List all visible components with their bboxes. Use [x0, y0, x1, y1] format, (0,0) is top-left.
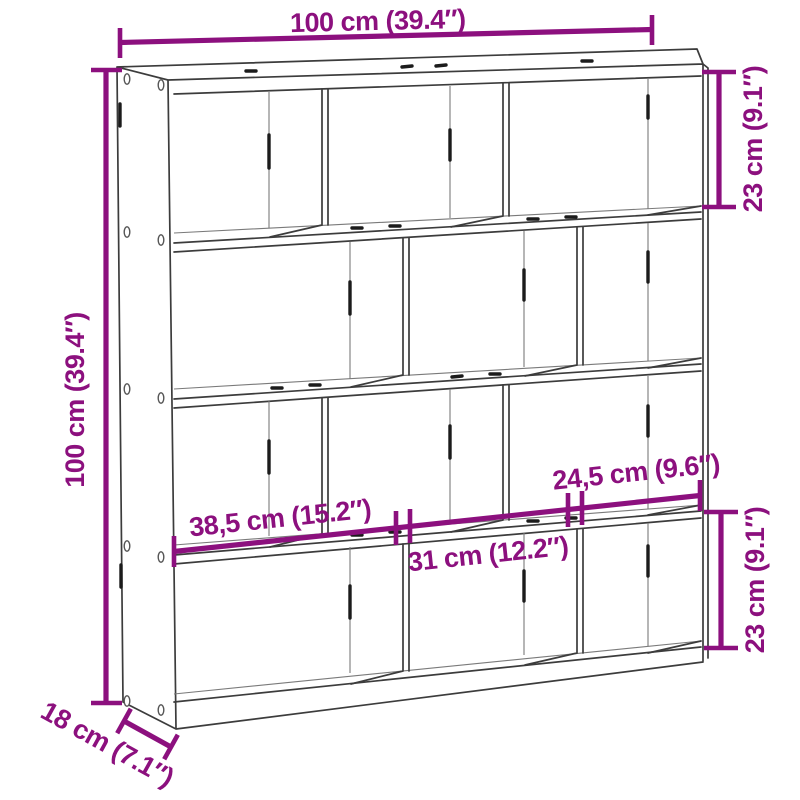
divider-front-edges: [270, 83, 701, 684]
dimension-bottom-right-cube-height: 23 cm (9.1″): [704, 507, 770, 654]
product-dimension-diagram: 100 cm (39.4″) 100 cm (39.4″) 23 cm (9.1…: [0, 0, 800, 800]
shelf-surface-back-edges: [174, 206, 701, 694]
compartment-right-width-label: 24,5 cm (9.6″): [551, 448, 721, 495]
dimension-annotations: 100 cm (39.4″) 100 cm (39.4″) 23 cm (9.1…: [36, 4, 770, 793]
dimension-left-height: 100 cm (39.4″): [60, 70, 122, 703]
bottom-cube-height-label: 23 cm (9.1″): [740, 507, 770, 654]
cube-shelf-drawing: [117, 49, 708, 729]
shelf-surface-screw-marks: [246, 61, 592, 535]
dimension-depth: 18 cm (7.1″): [36, 695, 179, 792]
dimension-compartment-widths: 38,5 cm (15.2″) 31 cm (12.2″) 24,5 cm (9…: [174, 448, 721, 577]
side-panel-mounting-holes: [124, 74, 164, 715]
dimension-top-right-cube-height: 23 cm (9.1″): [702, 66, 768, 213]
top-cube-height-label: 23 cm (9.1″): [738, 66, 768, 213]
depth-label: 18 cm (7.1″): [36, 695, 179, 792]
dimension-top-width: 100 cm (39.4″): [120, 4, 652, 58]
cube-shelf-diagram: 100 cm (39.4″) 100 cm (39.4″) 23 cm (9.1…: [0, 0, 800, 800]
compartment-middle-width-label: 31 cm (12.2″): [406, 531, 569, 578]
top-width-label: 100 cm (39.4″): [290, 4, 466, 38]
left-height-label: 100 cm (39.4″): [60, 312, 90, 488]
shelf-carcass-outline: [117, 49, 708, 729]
